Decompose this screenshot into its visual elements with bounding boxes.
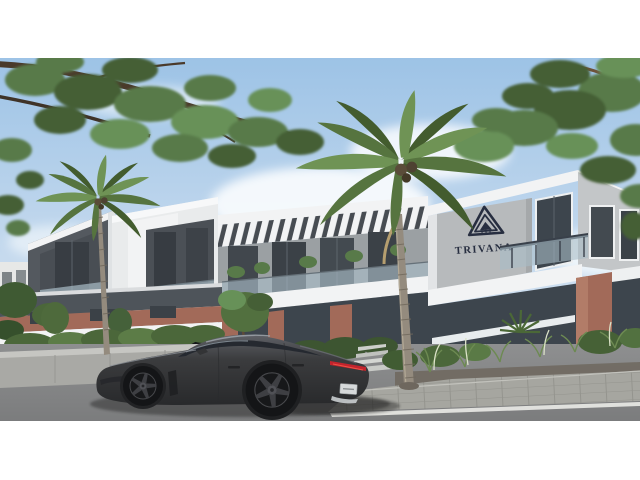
letterbox-top [0, 0, 640, 58]
scene: TRIVANA [0, 0, 640, 480]
car-license-plate [340, 383, 358, 394]
car-wheel-front [123, 366, 163, 406]
door-handle-rear [292, 364, 304, 367]
car-wheel-rear [246, 364, 299, 417]
render-frame: TRIVANA [0, 0, 640, 480]
letterbox-bottom [0, 421, 640, 480]
door-handle [228, 366, 240, 369]
